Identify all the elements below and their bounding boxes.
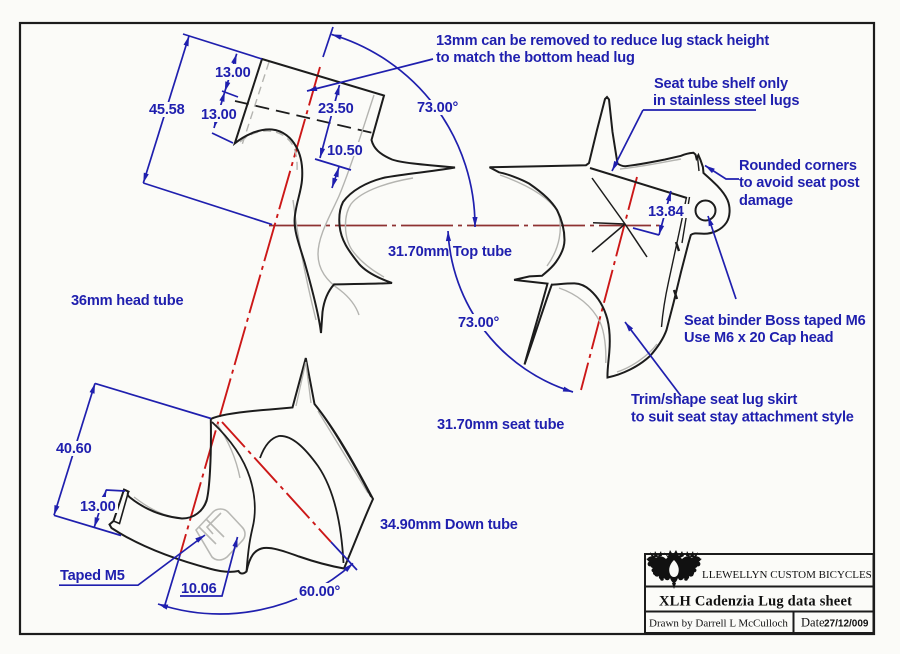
svg-text:Rounded corners: Rounded corners (739, 158, 857, 174)
svg-text:Trim/shape seat lug skirt: Trim/shape seat lug skirt (631, 392, 797, 408)
svg-text:10.50: 10.50 (327, 143, 363, 159)
svg-text:13.00: 13.00 (80, 499, 116, 515)
svg-text:31.70mm Top tube: 31.70mm Top tube (388, 244, 512, 260)
svg-text:27/12/009: 27/12/009 (824, 619, 869, 630)
svg-text:Taped M5: Taped M5 (60, 568, 125, 584)
svg-text:34.90mm Down tube: 34.90mm Down tube (380, 517, 518, 533)
svg-text:to match the bottom head lug: to match the bottom head lug (436, 50, 635, 66)
svg-text:73.00°: 73.00° (458, 315, 500, 331)
svg-text:73.00°: 73.00° (417, 100, 459, 116)
svg-text:13.84: 13.84 (648, 204, 685, 220)
svg-text:13.00: 13.00 (201, 107, 237, 123)
svg-text:13.00: 13.00 (215, 65, 251, 81)
svg-text:in stainless steel lugs: in stainless steel lugs (653, 93, 799, 109)
svg-text:40.60: 40.60 (56, 441, 92, 457)
svg-text:Seat tube shelf only: Seat tube shelf only (654, 76, 789, 92)
svg-text:10.06: 10.06 (181, 581, 217, 597)
svg-text:to suit seat stay attachment s: to suit seat stay attachment style (631, 410, 854, 426)
svg-text:31.70mm seat tube: 31.70mm seat tube (437, 417, 564, 433)
svg-text:13mm can be removed to reduce: 13mm can be removed to reduce lug stack … (436, 33, 769, 49)
svg-text:LLEWELLYN CUSTOM BICYCLES: LLEWELLYN CUSTOM BICYCLES (702, 569, 872, 581)
svg-text:Use M6 x 20 Cap head: Use M6 x 20 Cap head (684, 330, 833, 346)
svg-text:23.50: 23.50 (318, 101, 354, 117)
svg-text:XLH Cadenzia Lug data sheet: XLH Cadenzia Lug data sheet (659, 594, 852, 610)
svg-text:60.00°: 60.00° (299, 584, 341, 600)
svg-text:36mm head tube: 36mm head tube (71, 293, 183, 309)
svg-text:Seat binder Boss taped M6: Seat binder Boss taped M6 (684, 313, 866, 329)
svg-text:damage: damage (739, 193, 793, 209)
svg-text:to avoid seat post: to avoid seat post (739, 175, 860, 191)
svg-text:45.58: 45.58 (149, 102, 185, 118)
svg-text:Date: Date (801, 616, 825, 630)
svg-text:Drawn by Darrell L McCulloch: Drawn by Darrell L McCulloch (649, 618, 788, 630)
